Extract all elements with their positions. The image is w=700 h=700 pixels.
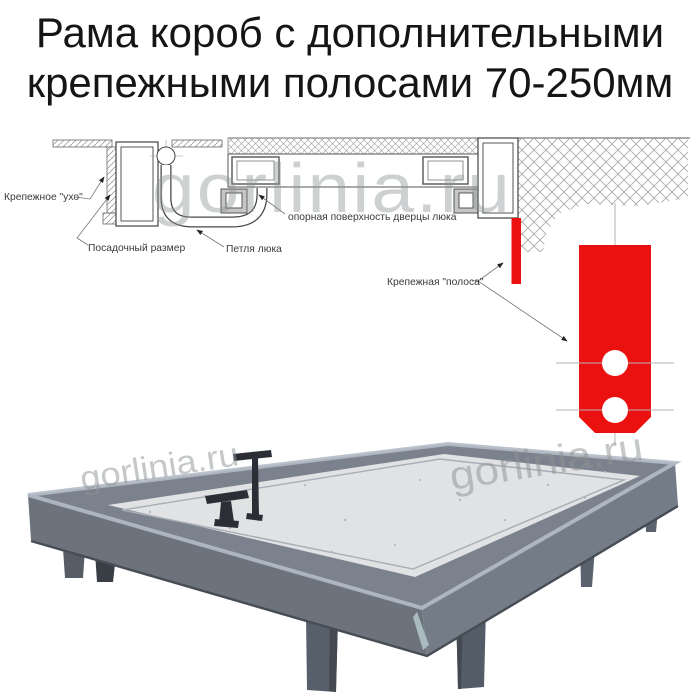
product-card: Рама короб с дополнительнымикрепежными п…	[0, 0, 700, 700]
wall-hatch	[518, 138, 688, 252]
label-ear: Крепежное "ухо"	[4, 192, 83, 203]
product-illustration: Крепежное "ухо" Посадочный размер Петля …	[0, 0, 700, 700]
fastening-strip-enlarged	[556, 203, 674, 445]
label-hinge: Петля люка	[226, 244, 282, 255]
label-strip: Крепежная "полоса"	[387, 277, 484, 288]
fastening-strip-small	[512, 218, 522, 284]
strip-hole	[602, 350, 628, 376]
strip-hole	[602, 397, 628, 423]
label-seat-size: Посадочный размер	[88, 243, 185, 254]
watermark-diagram: gorlinia.ru	[152, 149, 512, 227]
